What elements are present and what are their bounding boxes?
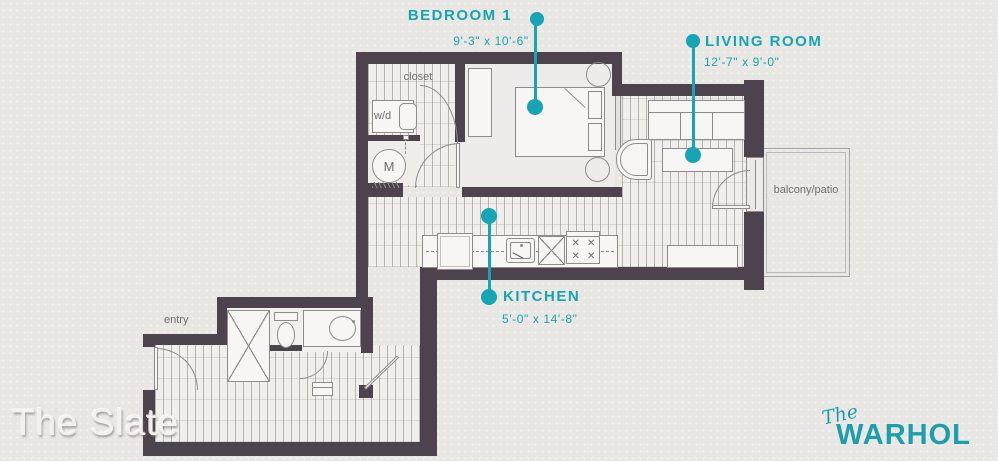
leader-dot — [481, 208, 497, 224]
mechanical-door-stop — [403, 135, 409, 140]
mechanical-unit: M — [372, 149, 406, 183]
plan-name: The Slate — [12, 402, 179, 444]
mechanical-door-dash — [405, 138, 406, 154]
nightstand — [585, 157, 610, 182]
living-room-label: LIVING ROOM — [705, 33, 822, 50]
balcony-label: balcony/patio — [768, 184, 844, 196]
toilet-tank — [274, 312, 298, 321]
kitchen-dims: 5'-0" x 14'-8" — [502, 312, 578, 326]
leader-line-bedroom — [534, 19, 537, 107]
faucet — [520, 244, 523, 247]
wall-segment — [744, 80, 764, 157]
entry-door-leaf — [154, 347, 158, 390]
bedroom-door-leaf — [456, 143, 460, 188]
balcony-door-leaf — [712, 205, 750, 209]
sofa-cushion-line — [680, 112, 681, 139]
wall-segment — [143, 442, 437, 456]
tv-stand — [667, 245, 738, 268]
dresser — [468, 68, 492, 137]
building-logo-name: WARHOL — [836, 419, 971, 452]
linen-cabinet — [312, 382, 333, 396]
lounge-chair-inner — [620, 143, 648, 176]
bathroom-faucet — [352, 320, 355, 323]
louver-vent — [372, 182, 400, 188]
thin-partition — [615, 92, 621, 150]
nightstand — [586, 62, 611, 87]
shower — [227, 310, 270, 382]
leader-dot — [527, 99, 543, 115]
pillow — [588, 91, 602, 119]
leader-line-living — [692, 41, 695, 155]
lounge-chair — [616, 139, 652, 180]
bedroom-dims: 9'-3" x 10'-6" — [430, 34, 552, 48]
wall-segment — [462, 187, 622, 197]
living-room-dims: 12'-7" x 9'-0" — [704, 55, 780, 69]
wall-segment — [356, 52, 368, 308]
sofa — [648, 100, 745, 140]
sofa-back-line — [649, 112, 744, 113]
wall-segment — [217, 297, 373, 308]
pillow — [588, 123, 602, 151]
sliding-door-line — [755, 160, 756, 209]
sofa-cushion-line — [712, 112, 713, 139]
leader-line-kitchen — [488, 216, 491, 297]
leader-dot — [530, 12, 544, 26]
leader-dot — [685, 147, 701, 163]
washer-dryer-door — [399, 103, 417, 130]
wall-segment — [356, 52, 622, 64]
balcony-inner-line — [766, 152, 846, 273]
kitchen-label: KITCHEN — [503, 288, 580, 305]
refrigerator-inner — [440, 236, 470, 267]
wall-segment — [368, 135, 420, 141]
leader-dot — [686, 34, 700, 48]
kitchen-sink — [506, 238, 535, 263]
wall-segment — [217, 297, 227, 345]
dishwasher — [538, 236, 565, 265]
washer-dryer-label: w/d — [374, 110, 391, 122]
balcony-outline — [762, 148, 850, 277]
mechanical-label: M — [384, 159, 395, 174]
wall-segment — [614, 84, 750, 96]
refrigerator — [437, 233, 473, 270]
closet-label: closet — [393, 71, 443, 83]
wall-segment — [361, 297, 373, 353]
wall-segment — [143, 334, 155, 347]
linen-cabinet-line — [313, 387, 332, 388]
floor-plan: balcony/patio closet w/d M — [0, 0, 998, 461]
entry-label: entry — [164, 314, 188, 326]
toilet-bowl — [277, 322, 295, 348]
floor-hall-entry — [155, 345, 420, 442]
leader-dot — [481, 289, 497, 305]
stove-burners: ✕✕✕✕ — [568, 237, 599, 263]
bedroom-label: BEDROOM 1 — [395, 7, 525, 24]
stove: ✕✕✕✕ — [566, 231, 600, 264]
wall-segment — [420, 267, 437, 456]
